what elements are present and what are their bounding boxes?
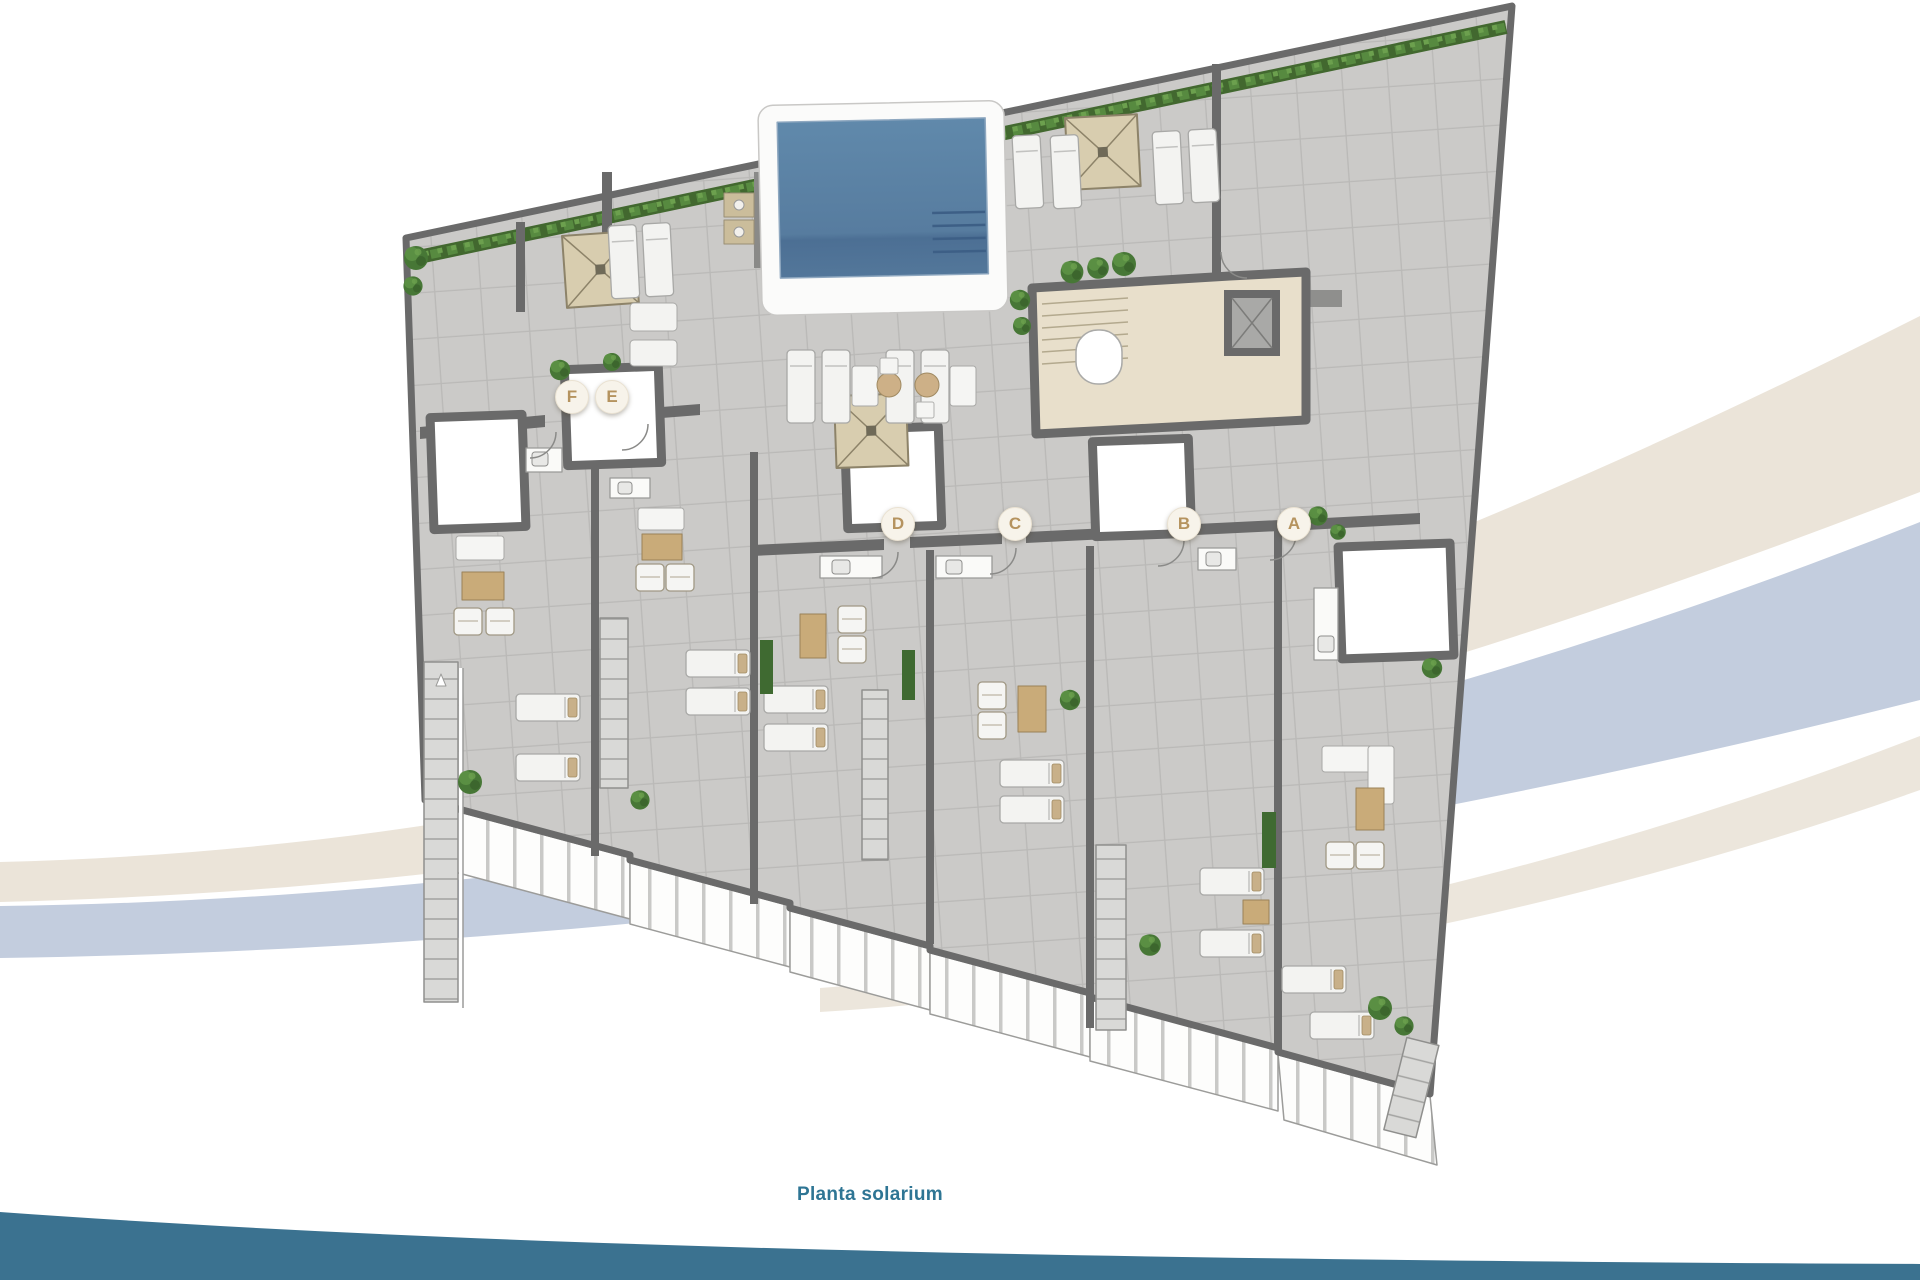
bottom-teal-band xyxy=(0,1212,1920,1280)
plan-caption: Planta solarium xyxy=(797,1184,943,1206)
pool-area xyxy=(758,100,1008,315)
planter xyxy=(902,650,915,700)
unit-marker-e: E xyxy=(595,380,629,414)
floor-plan xyxy=(403,6,1512,1165)
stair-e xyxy=(600,618,628,788)
stair-core xyxy=(1032,272,1306,434)
stair-left xyxy=(424,662,458,1002)
planter xyxy=(1262,812,1276,868)
solarium-plan-page: F E D C B A Planta solarium xyxy=(0,0,1920,1280)
planter xyxy=(760,640,773,694)
unit-marker-a: A xyxy=(1277,507,1311,541)
unit-marker-c: C xyxy=(998,507,1032,541)
elevator xyxy=(1224,290,1280,356)
unit-marker-b: B xyxy=(1167,507,1201,541)
stair-d xyxy=(862,690,888,860)
solarium-plan-graphic xyxy=(0,0,1920,1280)
unit-marker-f: F xyxy=(555,380,589,414)
pool-water xyxy=(777,118,988,278)
stair-cb xyxy=(1096,845,1126,1030)
unit-marker-d: D xyxy=(881,507,915,541)
core-basin xyxy=(1076,330,1122,384)
